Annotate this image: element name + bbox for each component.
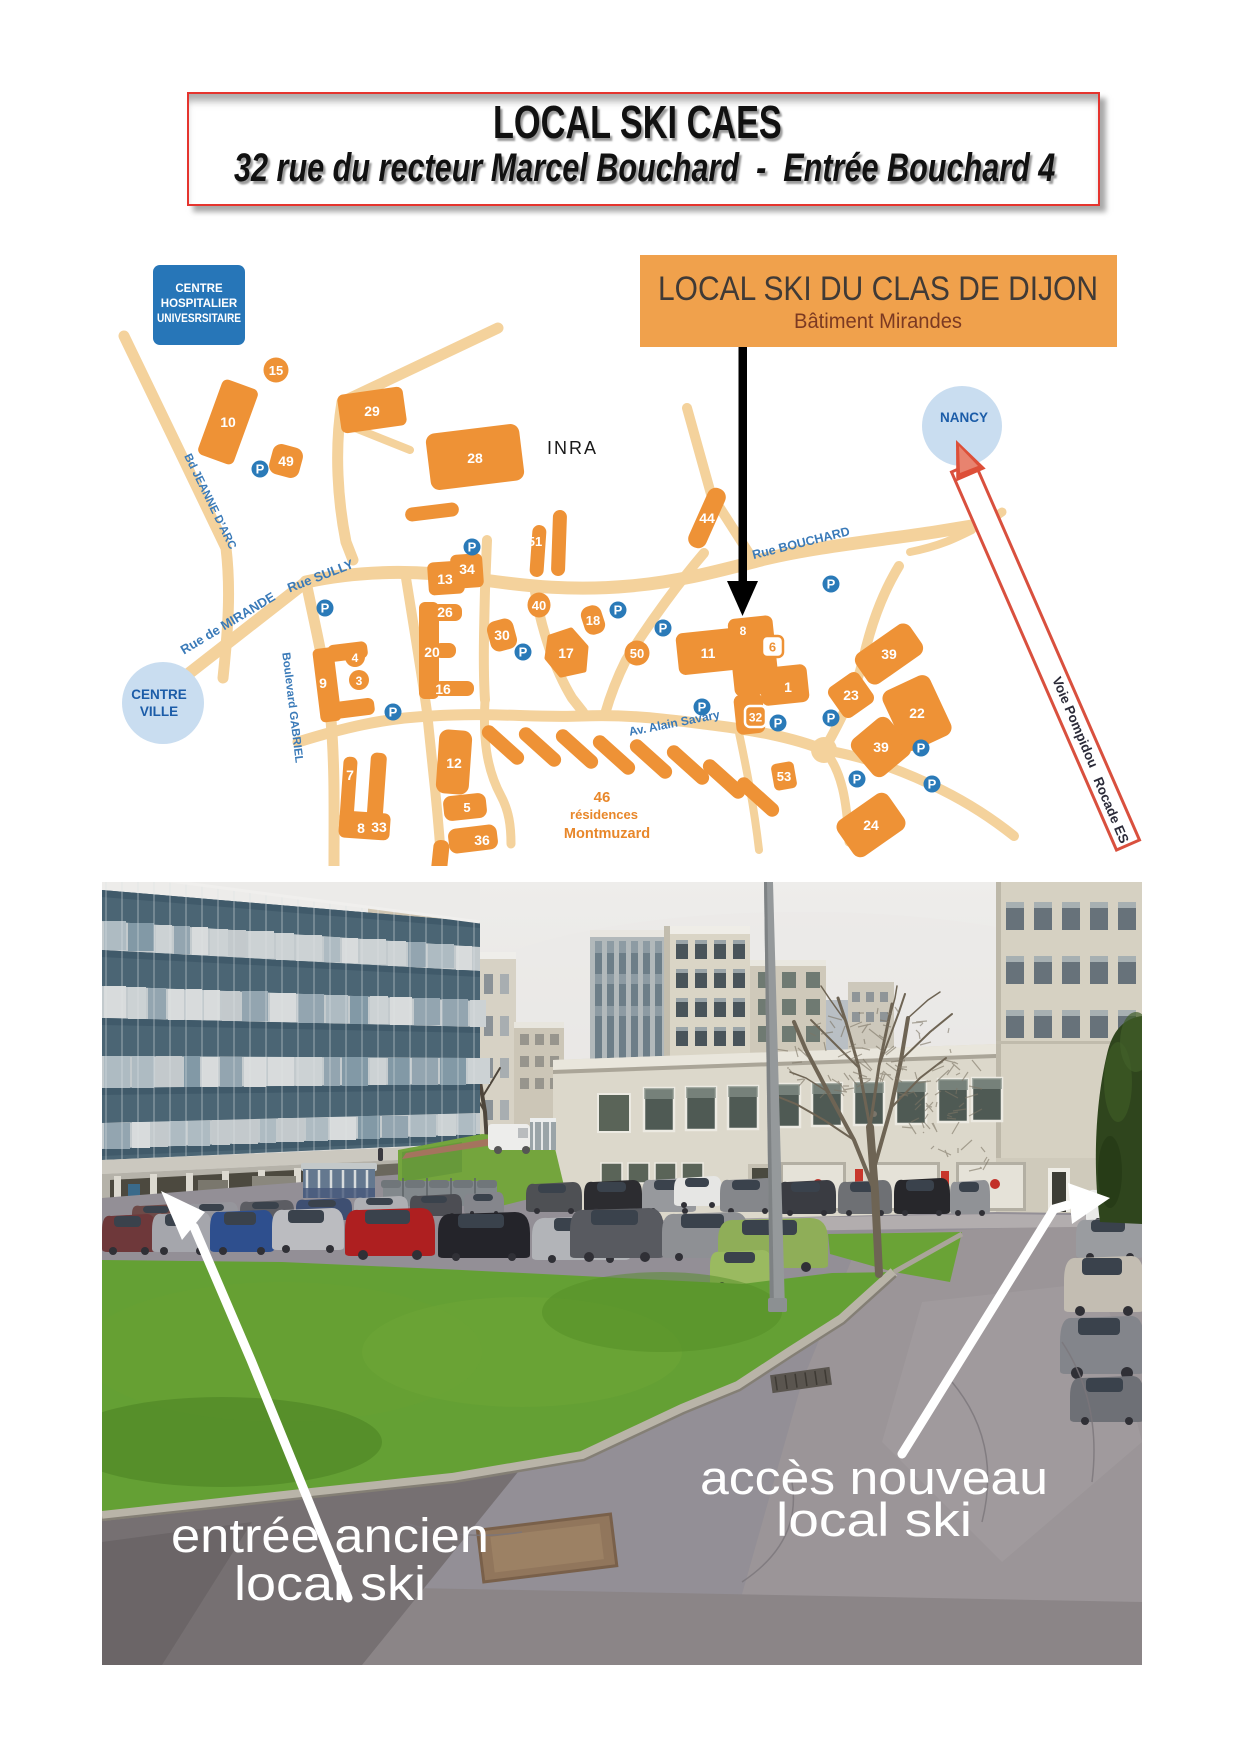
svg-text:Bd JEANNE D’ARC: Bd JEANNE D’ARC (181, 452, 238, 551)
svg-text:20: 20 (424, 644, 440, 660)
svg-text:P: P (614, 603, 623, 618)
svg-text:24: 24 (863, 817, 879, 833)
svg-text:44: 44 (699, 510, 715, 526)
svg-text:Boulevard GABRIEL: Boulevard GABRIEL (279, 652, 304, 764)
svg-text:26: 26 (437, 604, 453, 620)
svg-text:P: P (853, 772, 862, 787)
svg-text:11: 11 (701, 645, 716, 661)
svg-text:P: P (774, 716, 783, 731)
svg-text:9: 9 (319, 675, 327, 691)
svg-text:36: 36 (474, 832, 490, 848)
svg-text:34: 34 (459, 561, 475, 577)
svg-text:P: P (659, 621, 668, 636)
svg-text:NANCY: NANCY (940, 410, 988, 425)
svg-text:17: 17 (558, 645, 574, 661)
svg-text:4: 4 (352, 651, 359, 665)
svg-text:P: P (917, 741, 926, 756)
svg-text:Montmuzard: Montmuzard (564, 826, 650, 842)
svg-text:8: 8 (357, 820, 365, 836)
svg-text:3: 3 (356, 674, 363, 688)
svg-text:23: 23 (843, 687, 859, 703)
svg-text:39: 39 (881, 646, 897, 662)
svg-text:49: 49 (278, 453, 294, 469)
svg-text:local ski: local ski (234, 1558, 426, 1611)
svg-text:33: 33 (371, 819, 387, 835)
svg-text:51: 51 (528, 534, 542, 549)
svg-text:P: P (256, 462, 265, 477)
svg-text:VILLE: VILLE (140, 704, 178, 719)
svg-text:HOSPITALIER: HOSPITALIER (161, 298, 238, 310)
svg-text:18: 18 (586, 613, 600, 628)
svg-text:46: 46 (594, 789, 611, 806)
svg-text:30: 30 (494, 627, 510, 643)
svg-text:LOCAL SKI DU CLAS DE DIJON: LOCAL SKI DU CLAS DE DIJON (658, 270, 1098, 308)
svg-text:CENTRE: CENTRE (175, 283, 223, 295)
svg-text:22: 22 (909, 705, 925, 721)
svg-text:P: P (928, 777, 937, 792)
svg-text:résidences: résidences (570, 807, 638, 822)
svg-text:P: P (321, 601, 330, 616)
svg-text:15: 15 (269, 363, 283, 378)
svg-text:P: P (468, 540, 477, 555)
svg-text:29: 29 (364, 403, 380, 419)
svg-text:13: 13 (437, 571, 453, 587)
svg-text:7: 7 (346, 767, 354, 783)
svg-text:40: 40 (532, 598, 546, 613)
svg-text:1: 1 (784, 679, 792, 695)
svg-text:12: 12 (446, 755, 462, 771)
svg-text:39: 39 (873, 739, 889, 755)
svg-text:P: P (827, 577, 836, 592)
svg-text:16: 16 (435, 681, 451, 697)
svg-text:6: 6 (769, 640, 776, 655)
svg-text:P: P (519, 645, 528, 660)
svg-text:P: P (389, 705, 398, 720)
svg-text:32: 32 (749, 711, 763, 725)
svg-text:CENTRE: CENTRE (131, 687, 187, 702)
svg-text:UNIVESRSITAIRE: UNIVESRSITAIRE (157, 313, 241, 325)
svg-text:local ski: local ski (776, 1493, 972, 1546)
svg-text:8: 8 (740, 624, 747, 638)
svg-text:10: 10 (220, 414, 236, 430)
svg-text:INRA: INRA (547, 438, 598, 458)
svg-text:Bâtiment Mirandes: Bâtiment Mirandes (794, 310, 962, 333)
svg-text:28: 28 (467, 450, 483, 466)
svg-text:50: 50 (630, 646, 644, 661)
svg-text:5: 5 (463, 800, 470, 815)
svg-text:P: P (827, 711, 836, 726)
svg-text:entrée ancien: entrée ancien (171, 1510, 489, 1563)
svg-text:53: 53 (777, 769, 791, 784)
